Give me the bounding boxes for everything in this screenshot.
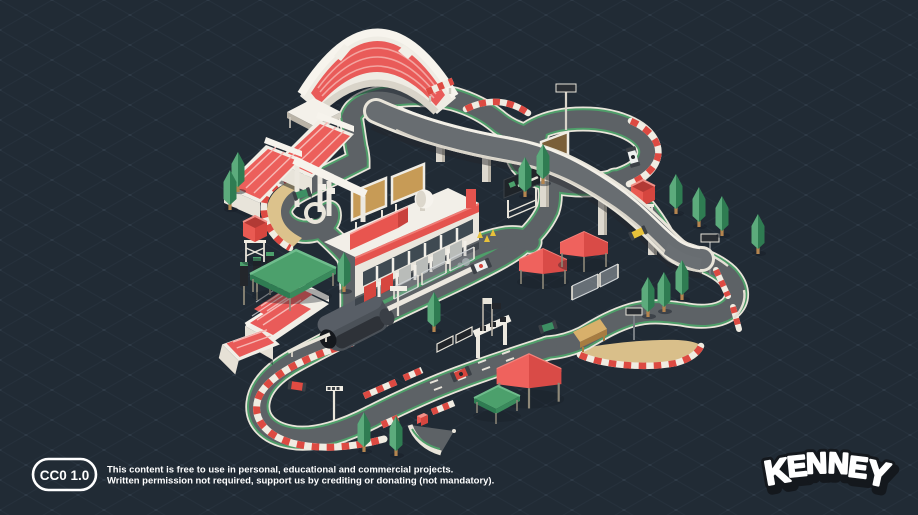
svg-text:This content is free to use in: This content is free to use in personal,… (107, 465, 453, 476)
svg-text:N: N (827, 447, 850, 480)
svg-text:CC0 1.0: CC0 1.0 (40, 468, 90, 483)
svg-text:N: N (806, 448, 828, 481)
svg-text:Written permission not require: Written permission not required, support… (107, 476, 494, 487)
